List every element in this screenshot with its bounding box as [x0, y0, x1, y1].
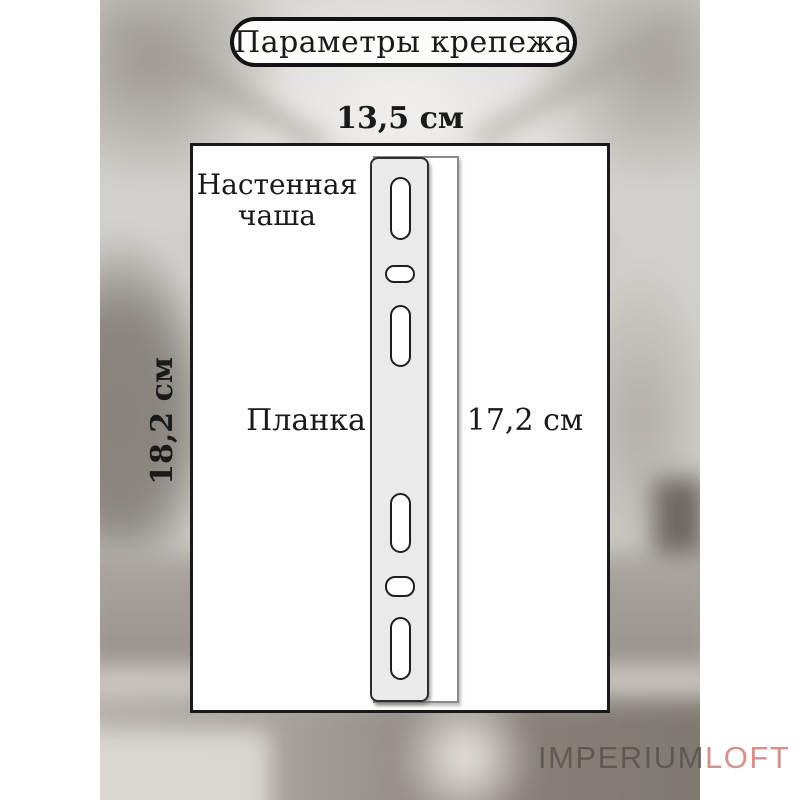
- watermark-imperium: IMPERIUM: [538, 740, 705, 775]
- mounting-slot-6: [390, 617, 411, 680]
- photo-bottom-left-light: [100, 730, 270, 800]
- page-title: Параметры крепежа: [234, 25, 573, 60]
- mounting-slot-2: [385, 265, 415, 283]
- plate-label: Планка: [230, 403, 382, 438]
- watermark-loft: LOFT: [705, 740, 790, 775]
- brand-watermark: IMPERIUMLOFT: [538, 740, 790, 776]
- mounting-slot-4: [390, 493, 411, 553]
- mounting-slot-3: [390, 305, 411, 367]
- mounting-slot-1: [390, 177, 411, 240]
- product-infographic: { "title": "Параметры крепежа", "diagram…: [0, 0, 800, 800]
- top-dimension-label: 13,5 см: [190, 101, 610, 136]
- title-pill: Параметры крепежа: [230, 17, 577, 67]
- mounting-slot-5: [385, 576, 415, 597]
- left-dimension-label: 18,2 см: [133, 356, 193, 486]
- wall-cup-label: Настенная чаша: [192, 170, 362, 232]
- right-dimension-label: 17,2 см: [445, 403, 605, 438]
